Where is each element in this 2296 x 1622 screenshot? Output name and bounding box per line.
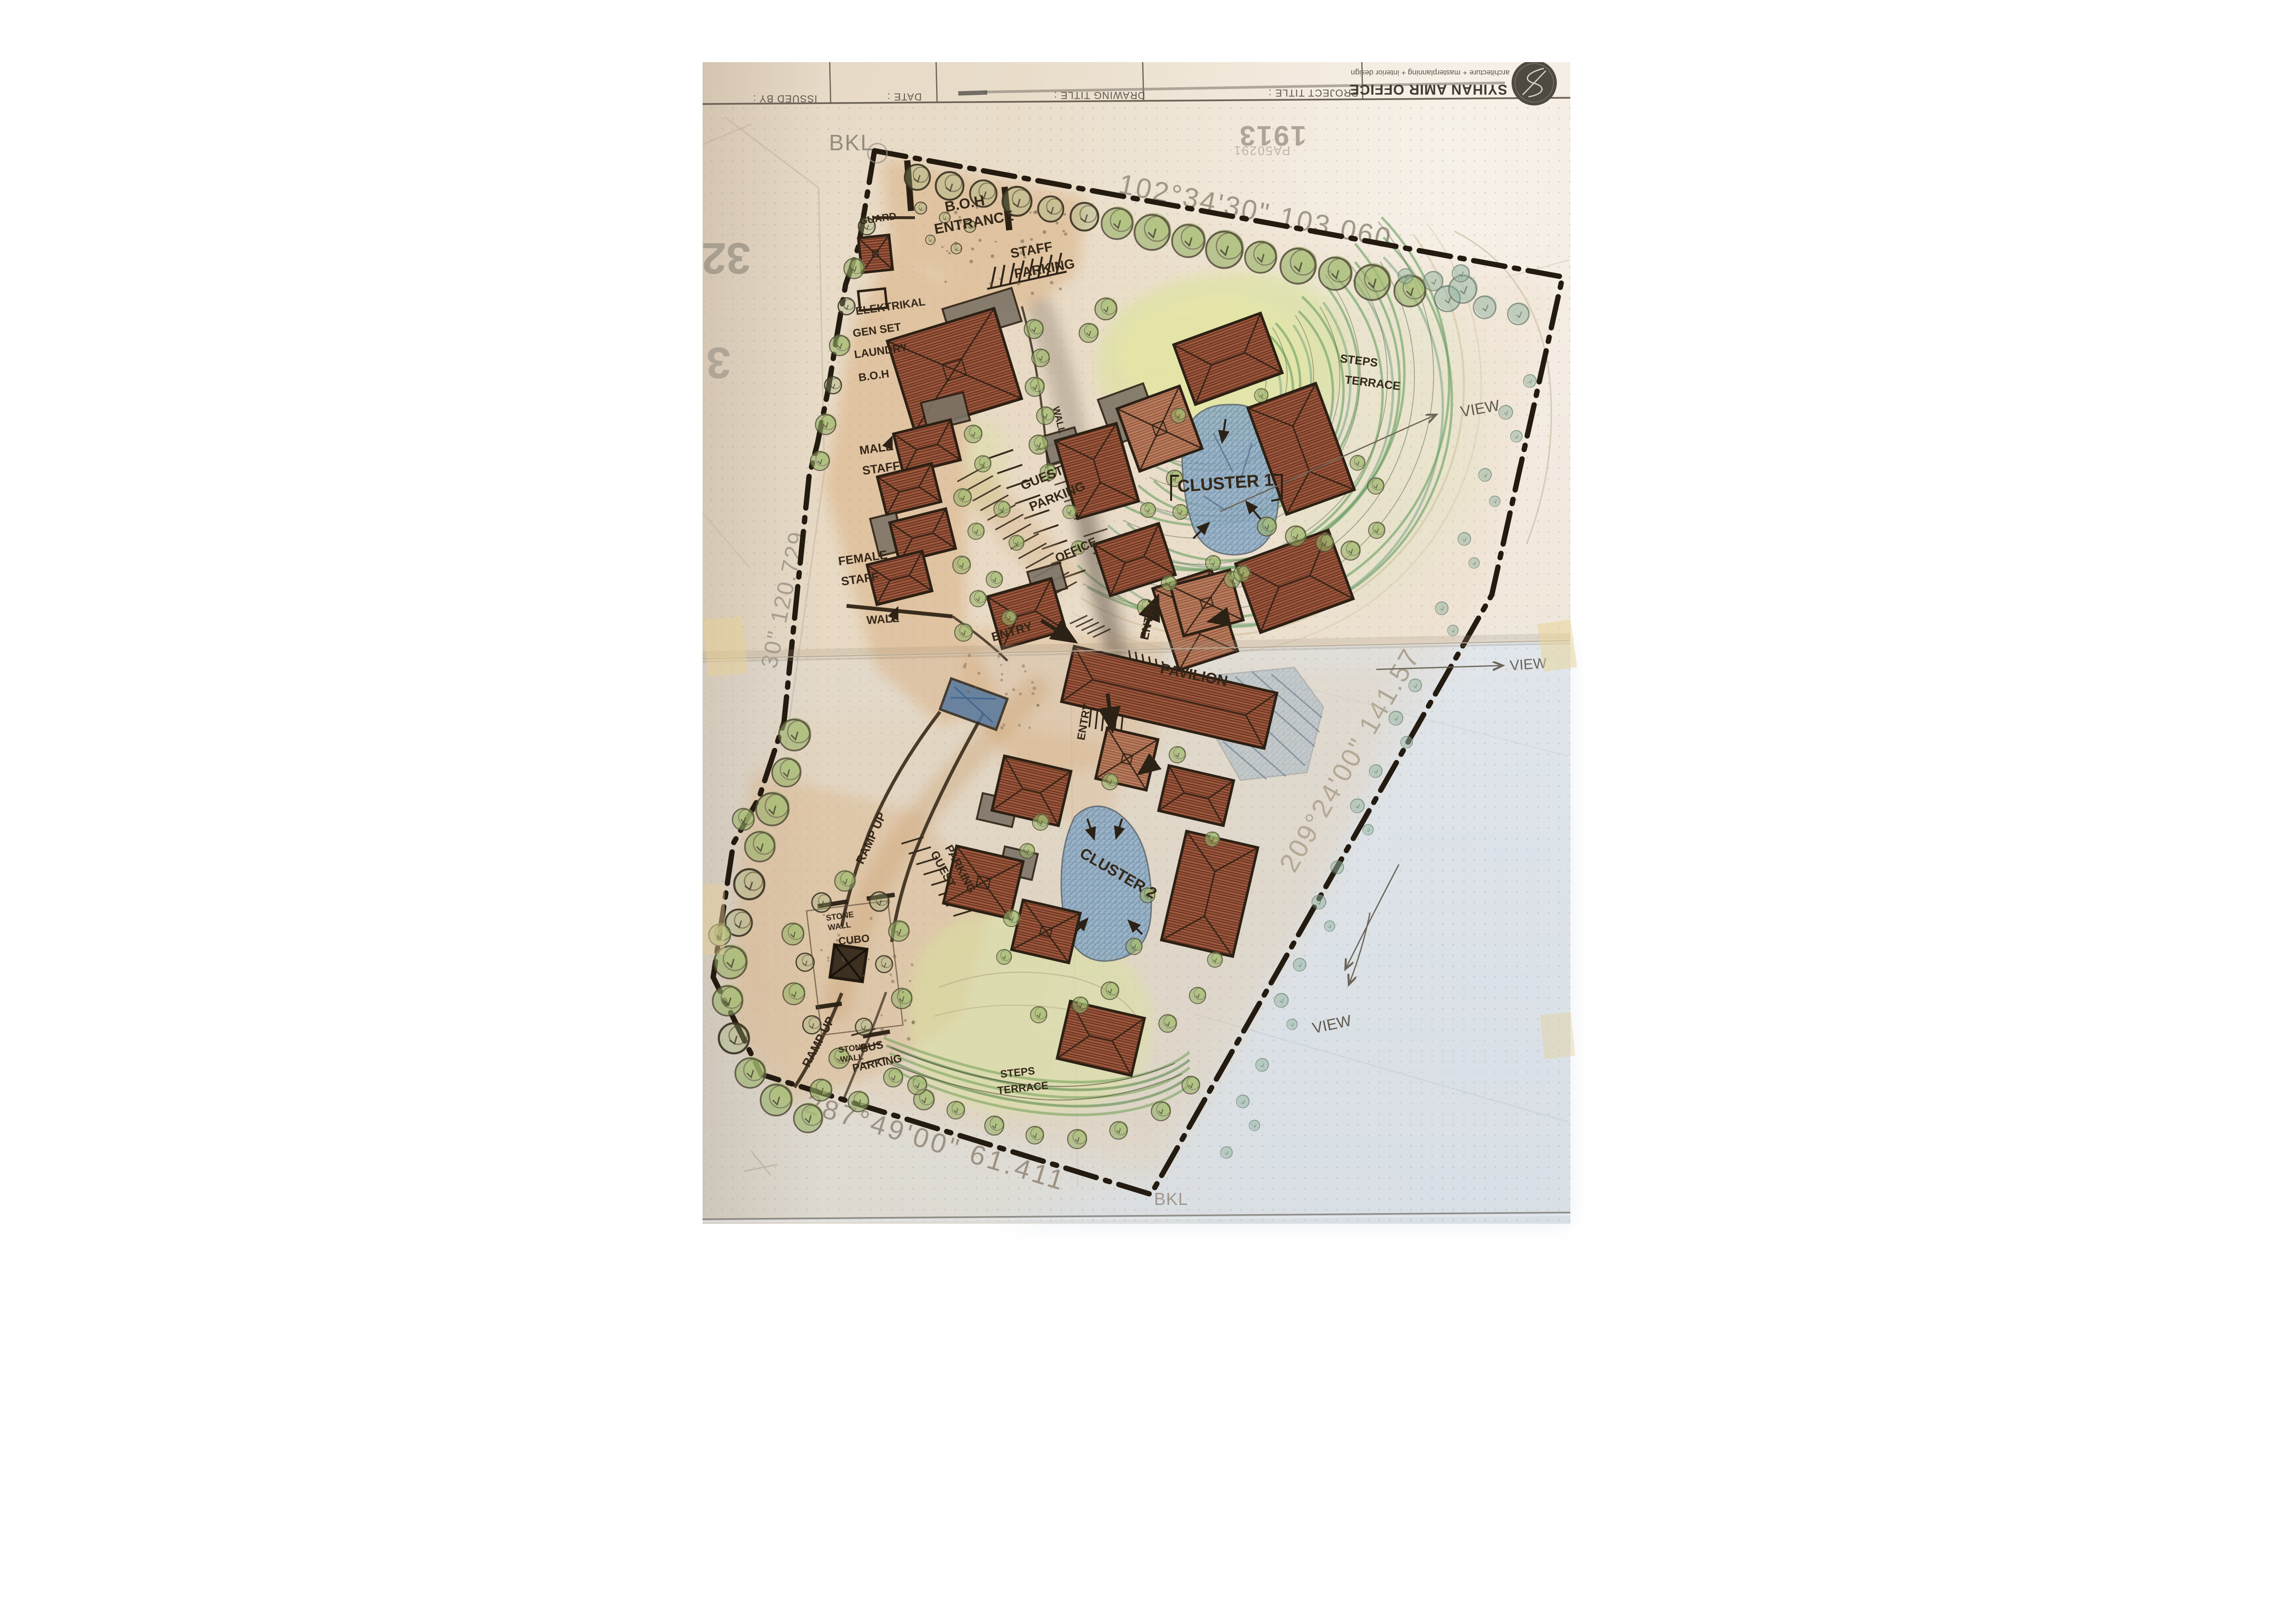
svg-text:DRAWING TITLE :: DRAWING TITLE : xyxy=(1054,90,1145,101)
svg-text:VIEW: VIEW xyxy=(1509,655,1547,674)
svg-text:32: 32 xyxy=(702,234,751,283)
svg-text:BKL: BKL xyxy=(829,130,874,155)
svg-text:PROJECT TITLE :: PROJECT TITLE : xyxy=(1268,87,1358,98)
svg-text:BKL: BKL xyxy=(1154,1189,1188,1209)
svg-text:WALL: WALL xyxy=(866,612,900,627)
svg-text:DATE :: DATE : xyxy=(887,91,922,102)
svg-text:PA50291: PA50291 xyxy=(1233,144,1290,158)
svg-text:architecture + masterplanning: architecture + masterplanning + interior… xyxy=(1351,68,1510,77)
svg-text:SYIHAN AMIR OFFICE: SYIHAN AMIR OFFICE xyxy=(1349,81,1507,97)
svg-text:3: 3 xyxy=(706,338,731,387)
svg-text:ISSUED BY :: ISSUED BY : xyxy=(753,93,817,104)
